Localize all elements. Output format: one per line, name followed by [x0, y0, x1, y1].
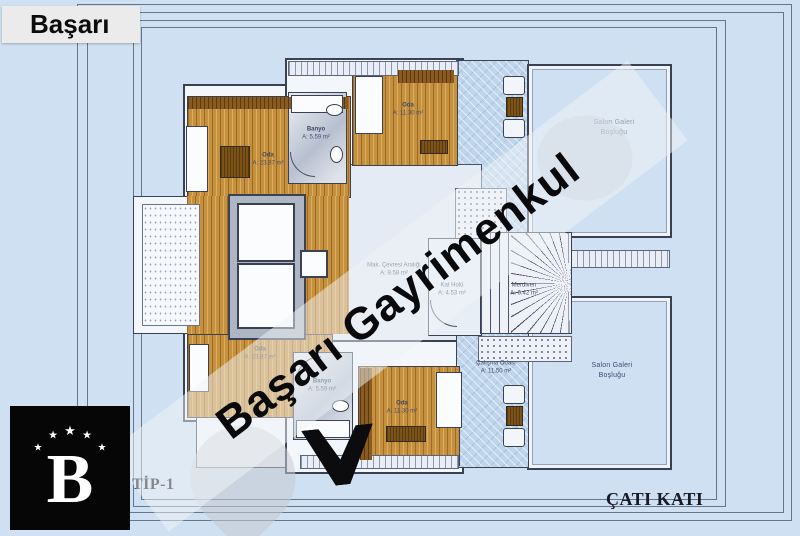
- left-terrace-hatch: [142, 204, 200, 326]
- bridge-hatch: [570, 250, 670, 268]
- balcony-table: [506, 97, 523, 117]
- room-label-banyo-top: Banyo A: 5.59 m²: [302, 126, 330, 143]
- room-label-calisma-odasi: Çalışma Odası A: 11.50 m²: [476, 360, 516, 377]
- wardrobe: [220, 146, 250, 178]
- chair: [503, 428, 525, 447]
- floor-label: ÇATI KATI: [606, 489, 703, 510]
- brand-logo: ★ ★ ★ ★ ★ B: [10, 406, 130, 530]
- chair: [503, 385, 525, 404]
- room-label-merdiven: Merdiven A: 6.42 m²: [510, 282, 538, 299]
- room-label-salon-galeri-bottom: Salon Galeri Boşluğu: [592, 361, 633, 381]
- star-icon: ★: [34, 443, 43, 454]
- logo-letter: B: [47, 440, 94, 520]
- room-oda-top-header: [398, 70, 454, 83]
- sink-top: [330, 146, 343, 163]
- desk-bottom: [386, 426, 426, 442]
- star-icon: ★: [64, 423, 76, 439]
- star-icon: ★: [98, 443, 107, 454]
- dresser-top: [420, 140, 448, 154]
- chair: [503, 76, 525, 95]
- brand-box: Başarı: [2, 6, 140, 43]
- shaft-side-box: [300, 250, 328, 278]
- elevator-cabin-top: [237, 203, 295, 262]
- brand-name: Başarı: [30, 9, 110, 40]
- toilet-top: [326, 104, 343, 116]
- sofa: [186, 126, 208, 192]
- room-label-oda-top: Oda A: 11.30 m²: [393, 102, 424, 119]
- balcony-table: [506, 406, 523, 426]
- bed-bottom: [436, 372, 462, 428]
- bed-top: [355, 76, 383, 134]
- chair: [503, 119, 525, 138]
- room-label-oda-top-left: Oda A: 23.87 m²: [252, 152, 283, 169]
- floorplan-image: Oda A: 23.87 m² Banyo A: 5.59 m² Oda A: …: [0, 0, 800, 536]
- stair-landing-hatch: [478, 336, 572, 362]
- room-label-oda-bottom: Oda A: 11.30 m²: [387, 400, 418, 417]
